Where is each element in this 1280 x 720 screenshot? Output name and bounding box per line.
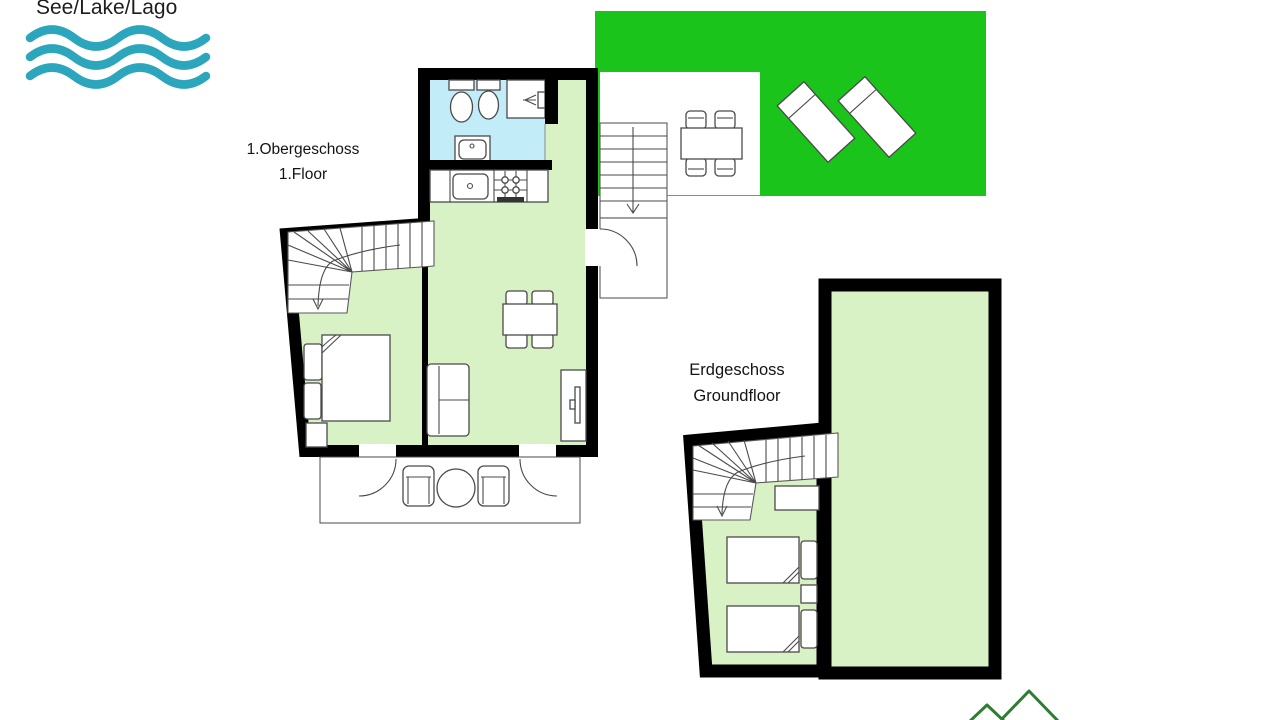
bathroom (430, 80, 545, 166)
upper-floor-label-de: 1.Obergeschoss (223, 137, 383, 162)
single-bed-1 (727, 537, 817, 583)
upper-floor-label: 1.Obergeschoss 1.Floor (223, 137, 383, 187)
floor-plan-canvas (0, 0, 1280, 720)
wardrobe (775, 486, 819, 510)
kitchen-sink (453, 174, 488, 199)
waves-icon (30, 30, 206, 85)
balcony (320, 457, 580, 523)
nightstand (801, 585, 817, 603)
tv-sideboard (561, 370, 586, 441)
dining-table (503, 304, 557, 335)
fir-trees-icon (969, 691, 1059, 720)
lake-label: See/Lake/Lago (36, 0, 236, 20)
nightstand (306, 423, 327, 447)
balcony-chair-right (478, 466, 509, 506)
kitchen (430, 170, 548, 202)
washbasin (455, 136, 490, 163)
tv (575, 387, 580, 423)
outdoor-staircase (600, 123, 667, 298)
ground-floor-label-de: Erdgeschoss (657, 357, 817, 383)
sofa (427, 364, 469, 436)
garden-table (681, 128, 742, 159)
single-bed-2 (727, 606, 817, 652)
ground-floor-label-en: Groundfloor (657, 383, 817, 409)
ground-floor-label: Erdgeschoss Groundfloor (657, 357, 817, 409)
upper-floor-plan (286, 74, 637, 465)
garden-room (825, 285, 995, 673)
balcony-round-table (437, 469, 475, 507)
upper-floor-label-en: 1.Floor (223, 162, 383, 187)
balcony-chair-left (403, 466, 434, 506)
bidet (477, 80, 500, 119)
toilet (449, 80, 474, 122)
ground-floor-plan (690, 285, 995, 673)
double-bed (304, 335, 390, 421)
shower (507, 80, 545, 118)
